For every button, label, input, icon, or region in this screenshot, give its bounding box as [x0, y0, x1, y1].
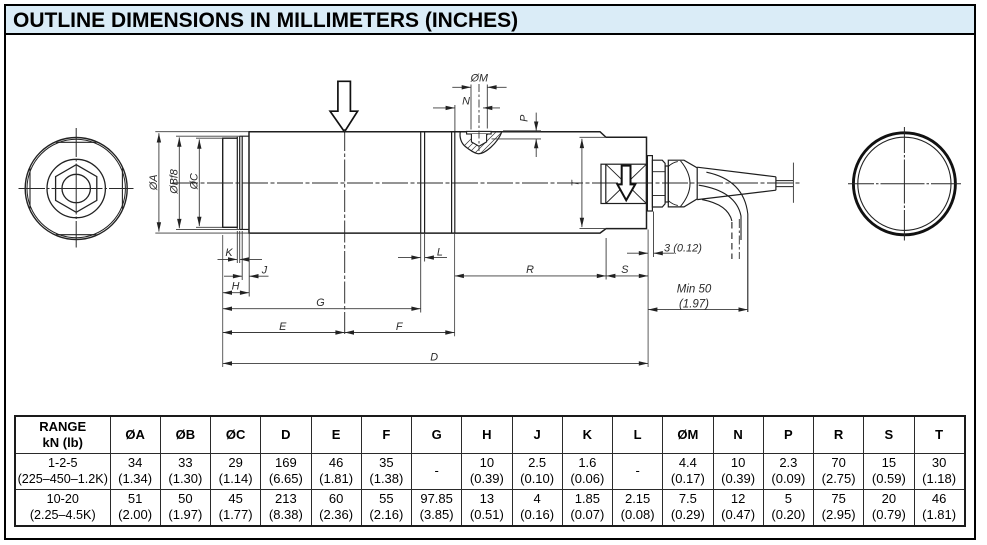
svg-text:3 (0.12): 3 (0.12) — [664, 243, 702, 255]
svg-text:ØC: ØC — [188, 173, 200, 190]
svg-text:L: L — [437, 247, 443, 259]
svg-text:S: S — [621, 264, 629, 276]
svg-text:(1.97): (1.97) — [679, 299, 709, 311]
svg-text:N: N — [462, 96, 470, 108]
svg-text:R: R — [526, 264, 534, 276]
svg-text:ØBf8: ØBf8 — [169, 169, 181, 195]
svg-text:F: F — [396, 321, 404, 333]
svg-text:H: H — [232, 281, 240, 293]
svg-text:ØA: ØA — [148, 174, 160, 191]
svg-text:P: P — [518, 114, 530, 122]
svg-text:ØM: ØM — [470, 73, 488, 85]
svg-text:J: J — [261, 265, 268, 277]
svg-text:E: E — [279, 321, 287, 333]
svg-text:D: D — [430, 352, 438, 364]
svg-text:Min 50: Min 50 — [677, 284, 712, 296]
svg-text:T: T — [571, 179, 582, 186]
svg-text:K: K — [225, 247, 233, 259]
svg-text:G: G — [316, 297, 324, 309]
